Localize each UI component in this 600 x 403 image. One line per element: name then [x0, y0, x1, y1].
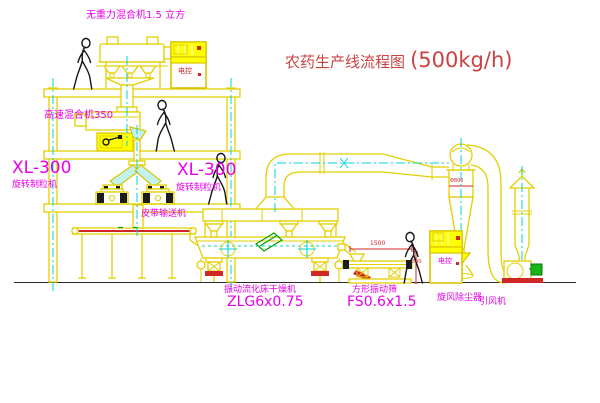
diagram-title-text: 农药生产线流程图	[285, 53, 405, 71]
dim-sieve-width: 1500	[370, 241, 385, 247]
fluid-bed-dryer	[195, 209, 345, 282]
label-fan: 引风机	[479, 298, 506, 307]
induced-draft-fan	[502, 261, 543, 283]
granulator-right	[140, 189, 176, 204]
label-cabinet-bottom: 电控	[438, 258, 452, 265]
dim-cyclone-diameter: Φ800	[450, 179, 463, 184]
dim-sieve-height: 540	[412, 260, 422, 265]
belt-conveyor	[72, 228, 200, 279]
label-cabinet-top: 电控	[178, 68, 192, 75]
control-cabinet-top	[171, 42, 206, 88]
label-dryer-model: ZLG6x0.75	[227, 295, 304, 309]
granulator-left	[94, 189, 130, 204]
label-cyclone: 旋风除尘器	[437, 294, 482, 303]
vibrating-sieve	[343, 244, 418, 283]
diagram-title-capacity: (500kg/h)	[410, 48, 512, 72]
label-granulator-right-model: XL-300	[177, 162, 236, 179]
y-splitter	[103, 165, 166, 189]
label-granulator-right-name: 旋转制粒机	[176, 184, 221, 193]
label-gravity-mixer: 无重力混合机1.5 立方	[86, 11, 185, 21]
person-figure	[156, 101, 174, 152]
person-figure	[74, 39, 92, 90]
label-belt-conveyor: 皮带输送机	[141, 210, 186, 219]
stack	[509, 166, 535, 262]
person-figure	[404, 233, 422, 284]
label-granulator-left-name: 旋转制粒机	[12, 181, 57, 190]
diagram-title: 农药生产线流程图 (500kg/h)	[285, 48, 512, 72]
label-granulator-left-model: XL-300	[12, 160, 71, 177]
label-high-speed-mixer: 高速混合机350	[44, 111, 113, 121]
exhaust-duct	[256, 152, 449, 209]
label-sieve-model: FS0.6x1.5	[347, 295, 417, 309]
process-flow-diagram: 农药生产线流程图 (500kg/h) 无重力混合机1.5 立方 高速混合机350…	[0, 0, 600, 403]
exhaust-pipe	[467, 145, 505, 283]
